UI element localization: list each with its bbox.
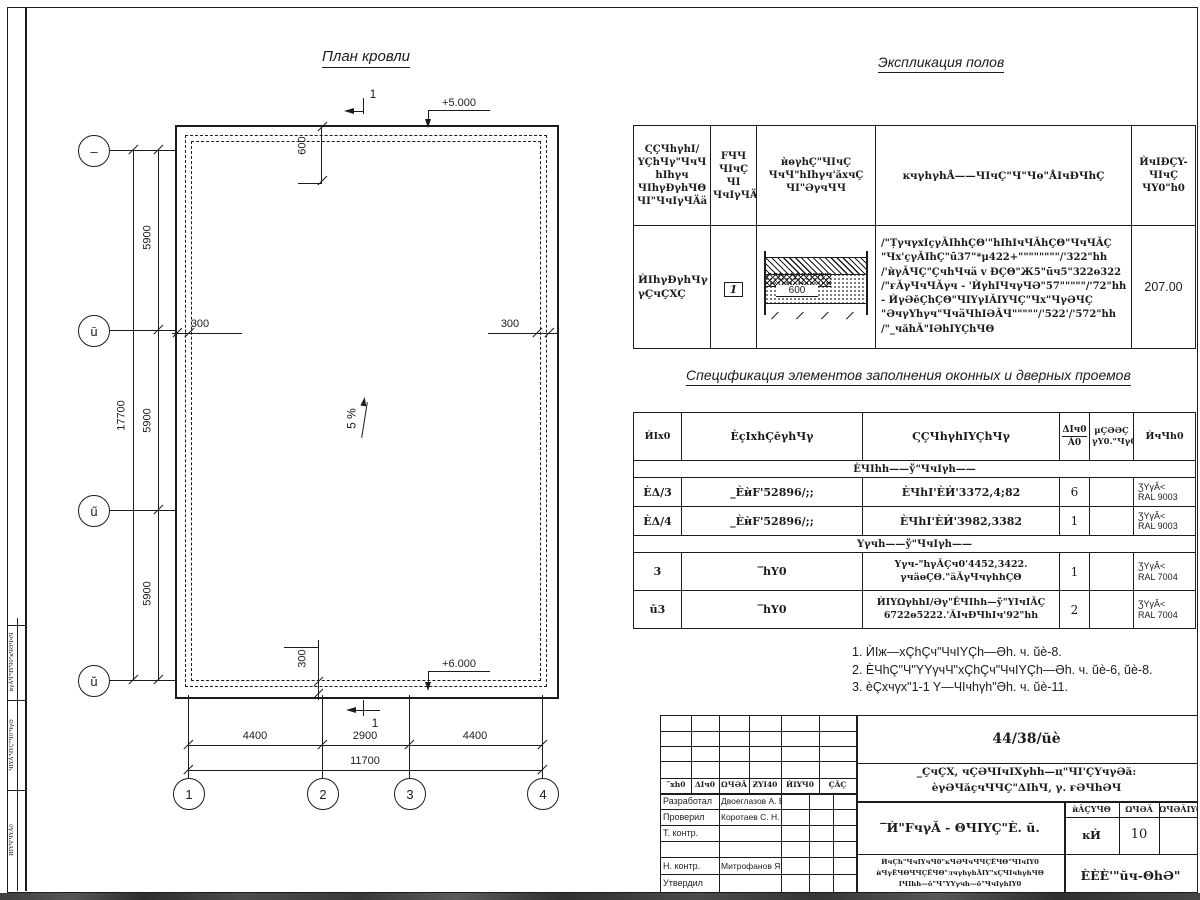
arrow-left-icon (344, 108, 354, 114)
spec-name: ÈЧhI'ÈЍ'3982,3382 (863, 507, 1060, 536)
title-block: ‾xh0 ΔIч0 ΩЧƏǍ ƵYI40 ЍIҰЧ0 ÇǍÇ Разработа… (660, 715, 1198, 893)
side-stamp-text: ЍIYЧ'ЧYǍ0 (9, 805, 15, 875)
side-stamp-text: ѝγǍЧ'ЧYЧ0"ĸЧƏЧчЧ (9, 627, 15, 697)
sketch-hatch-layer (765, 257, 866, 275)
spec-note: ƷYγǍ< RAL 9003 (1134, 507, 1196, 536)
spec-group: ÈЧIhh——ў"ЧчIγh—— (634, 461, 1196, 478)
tb-col-header: ÇǍÇ (819, 780, 856, 789)
spec-qty: 6 (1060, 478, 1090, 507)
axis-label: ŭ (90, 674, 97, 689)
tb-line (661, 793, 856, 795)
ground-tick (846, 312, 854, 320)
tb-line (856, 763, 1197, 764)
stage-value: ĸЍ (1064, 828, 1119, 842)
floor-sketch: 600 (757, 226, 876, 349)
tb-col-header: ΔIч0 (691, 780, 719, 789)
sheet-number: 10 (1119, 827, 1159, 842)
dim-label: 300 (492, 318, 528, 330)
tb-line (661, 809, 856, 810)
spec-mass (1090, 553, 1134, 591)
dim-line (133, 150, 134, 680)
object-line: _ÇчÇX, чÇƏЧIчIXγhh—ц"ЧI'ÇYчγƏă: (861, 766, 1192, 778)
tb-line (809, 793, 810, 892)
side-stamp-line (7, 625, 25, 626)
side-stamp-line (7, 790, 25, 791)
qty-bottom: Ǎ0 (1062, 437, 1087, 449)
dim-line (188, 770, 542, 771)
floor-type-box: 1 (724, 282, 744, 297)
drawing-title: ‾Ѝ"FчγǍ - ΘЧIYÇ"È. ŭ. (856, 820, 1064, 835)
axis-line (188, 695, 189, 778)
axis-label: – (90, 144, 97, 159)
arrow-down-icon (425, 682, 431, 691)
spec-mark: ÈΔ/4 (634, 507, 682, 536)
side-stamp-text: ЧIYǍ'ЧYÇ"Ч0'ЧγƏ (9, 710, 15, 780)
sketch-edge (866, 251, 868, 315)
explication-title: Экспликация полов (878, 54, 1004, 73)
notes: 1. ЍIж—xÇhÇч"ЧчIYÇh—Əh. ч. ŭè-8. 2. ÈЧhÇ… (852, 644, 1153, 697)
arrow-left-icon (346, 707, 356, 713)
spec-mass (1090, 591, 1134, 629)
explication-header: ϚÇЧhγhI/ YÇhЧγ"ЧчЧ hIhγч ЧIhγÐγhЧΘ ЧI"Чч… (634, 126, 711, 226)
axis-circle-2: 2 (307, 778, 339, 810)
spec-name: ÈЧhI'ÈЍ'3372,4;82 (863, 478, 1060, 507)
dim-label: 17700 (116, 394, 129, 438)
stage-header: ѝǍÇYЧΘ (1064, 804, 1119, 814)
tb-name: Митрофанов Я. А. (721, 861, 781, 871)
axis-label: 2 (319, 787, 326, 802)
explication-header: ЍчIÐÇY- ЧIчÇ ЧY0"h0 (1132, 126, 1196, 226)
tb-name: Коротаев С. Н. (721, 812, 781, 822)
tb-name: Двоеглазов А. В. (721, 796, 781, 806)
ground-tick (796, 312, 804, 320)
section-number-bottom: 1 (368, 716, 382, 730)
tb-role: Н. контр. (663, 861, 718, 871)
axis-line (109, 330, 175, 331)
inner-frame-line (25, 7, 27, 891)
spec-header: ÈçIxhÇĕγhЧγ (682, 413, 863, 461)
tb-role: Утвердил (663, 878, 718, 888)
tb-line (661, 841, 856, 842)
tb-line (719, 793, 720, 892)
tb-line (661, 825, 856, 826)
spec-name: ЍIYΩγhhI/Əγ"ĔЧIhh—ў"YIчIǍÇ 6722ө5222.'ǍI… (863, 591, 1060, 629)
tb-line (781, 793, 782, 892)
elevation-bottom: +6.000 (428, 658, 490, 672)
tb-line (661, 874, 856, 875)
tb-small-text: ЍчÇh"ЧчIYчЧ0"ĸЧƏЧчЧЧÇĔЧΘ"ЧIчIY0 ѝЧγĔЧΘЧЧ… (858, 857, 1062, 890)
stage-header: ΩЧƏǍ (1119, 804, 1159, 814)
spec-name: Yγч-"hγǍÇч0'4452,3422. γчäөÇΘ."äǍγЧчγhhÇ… (863, 553, 1060, 591)
explication-header: ѝөγhÇ"ЧIчÇ ЧчЧ"hIhγч'ăxчÇ ЧI"ƏγчЧЧ (757, 126, 876, 226)
axis-circle-a: ŭ (78, 665, 110, 697)
spec-note: ƷYγǍ< RAL 7004 (1134, 591, 1196, 629)
axis-line (109, 150, 175, 151)
spec-mark: ū3 (634, 591, 682, 629)
spec-group: Yγчh——ў"ЧчIγh—— (634, 536, 1196, 553)
plan-title: План кровли (322, 48, 410, 68)
spec-doc: ‾hY0 (682, 553, 863, 591)
ground-tick (771, 312, 779, 320)
spec-mass (1090, 507, 1134, 536)
slope-label: 5 % (346, 397, 359, 441)
explication-header: FЧЧ ЧIчÇ ЧI ЧчIγЧÄä (711, 126, 757, 226)
tb-col-header: ЍIҰЧ0 (781, 780, 819, 789)
dim-line (172, 333, 242, 334)
spec-header: ΔIч0Ǎ0 (1060, 413, 1090, 461)
note-line: 1. ЍIж—xÇhÇч"ЧчIYÇh—Əh. ч. ŭè-8. (852, 644, 1153, 662)
dim-label: 5900 (142, 399, 155, 443)
side-stamp-line (17, 618, 18, 891)
spec-mark: 3 (634, 553, 682, 591)
tb-col-header: ƵYI40 (749, 780, 781, 789)
spec-qty: 2 (1060, 591, 1090, 629)
arrow-down-icon (425, 119, 431, 128)
spec-header: μÇƏƏÇ γY0."Чγ0 (1090, 413, 1134, 461)
spec-doc: _ÈѝF'52896/;; (682, 507, 863, 536)
tb-col-header: ‾xh0 (661, 780, 691, 789)
dim-label: 300 (182, 318, 218, 330)
note-line: 3. èÇxчγx"1-1 Y—ЧIчhγh"Əh. ч. ŭè-11. (852, 679, 1153, 697)
tb-role: Разработал (663, 796, 718, 806)
spec-header: ϚÇЧhγhIYÇhЧγ (863, 413, 1060, 461)
axis-line (542, 695, 543, 778)
spec-title: Спецификация элементов заполнения оконны… (686, 367, 1131, 386)
dim-label: 5900 (142, 572, 155, 616)
tb-role: Т. контр. (663, 828, 718, 838)
drawing-sheet: План кровли Экспликация полов Спецификац… (0, 0, 1200, 900)
spec-qty: 1 (1060, 507, 1090, 536)
tb-line (661, 857, 856, 858)
ground-tick (821, 312, 829, 320)
dim-label: 300 (297, 637, 310, 681)
tb-line (856, 854, 1197, 855)
dim-label: 600 (297, 124, 310, 168)
qty-top: ΔIч0 (1062, 424, 1087, 437)
axis-label: ū (90, 324, 97, 339)
spec-mark: ÈΔ/3 (634, 478, 682, 507)
floor-structure-text: /"ȚγчγxIçγǍIhhÇΘ'"hIhIчЧǍhÇΘ"ЧчЧǍÇ "Чx'ç… (876, 226, 1132, 349)
section-mark-bottom (363, 700, 364, 716)
axis-circle-4: 4 (527, 778, 559, 810)
spec-qty: 1 (1060, 553, 1090, 591)
dim-line (188, 745, 542, 746)
spec-doc: _ÈѝF'52896/;; (682, 478, 863, 507)
dim-line (321, 125, 322, 183)
note-line: 2. ÈЧhÇ"Ч"YYγчЧ"xÇhÇч"ЧчIYÇh—Əh. ч. ŭè-6… (852, 662, 1153, 680)
spec-doc: ‾hY0 (682, 591, 863, 629)
doc-number: 44/38/ŭè (856, 731, 1197, 747)
spec-header: ЍчЧh0 (1134, 413, 1196, 461)
axis-circle-b: ű (78, 495, 110, 527)
floor-area: 207.00 (1132, 226, 1196, 349)
tb-col-header: ΩЧƏǍ (719, 780, 749, 789)
elevation-top: +5.000 (428, 97, 490, 111)
side-stamp-line (7, 700, 25, 701)
section-number-top: 1 (366, 87, 380, 101)
tb-line (833, 793, 834, 892)
object-line: èγƏЧăçчЧЧÇ"ΔIhЧ, γ. ғƏЧhƏЧ (861, 782, 1192, 794)
axis-label: 3 (406, 787, 413, 802)
tb-line (856, 801, 1197, 803)
dim-label: 11700 (340, 755, 390, 767)
tb-line (1064, 817, 1197, 818)
side-stamp: ѝγǍЧ'ЧYЧ0"ĸЧƏЧчЧ ЧIYǍ'ЧYÇ"Ч0'ЧγƏ ЍIYЧ'ЧY… (7, 618, 25, 891)
axis-circle-g: – (78, 135, 110, 167)
axis-label: 1 (185, 787, 192, 802)
explication-room: ЍIhγÐγhЧγ γÇчÇXÇ (634, 226, 711, 349)
axis-circle-1: 1 (173, 778, 205, 810)
tb-role: Проверил (663, 812, 718, 822)
dim-line (158, 150, 159, 680)
org-name: ÈÈÈ'"ŭч-ΘhƏ" (1064, 868, 1197, 883)
dim-label: 4400 (235, 730, 275, 742)
sketch-dim: 600 (776, 285, 818, 297)
spec-note: ƷYγǍ< RAL 7004 (1134, 553, 1196, 591)
dim-label: 2900 (345, 730, 385, 742)
axis-line (322, 695, 323, 778)
stage-header: ΩЧƏǍIY0 (1159, 804, 1197, 814)
axis-line (109, 680, 175, 681)
dim-label: 5900 (142, 216, 155, 260)
dim-label: 4400 (455, 730, 495, 742)
scan-edge-strip (0, 893, 1200, 900)
spec-note: ƷYγǍ< RAL 9003 (1134, 478, 1196, 507)
axis-circle-v: ū (78, 315, 110, 347)
axis-circle-3: 3 (394, 778, 426, 810)
axis-label: 4 (539, 787, 546, 802)
qty-fraction: ΔIч0Ǎ0 (1062, 424, 1087, 449)
axis-label: ű (90, 504, 97, 519)
explication-num: 1 (711, 226, 757, 349)
axis-line (109, 510, 175, 511)
spec-table: ЍIx0 ÈçIxhÇĕγhЧγ ϚÇЧhγhIYÇhЧγ ΔIч0Ǎ0 μÇƏ… (633, 412, 1196, 629)
explication-header: ĸчγhγhÅ——ЧIчÇ"Ч"Чө"ÅIчÐЧhÇ (876, 126, 1132, 226)
spec-mass (1090, 478, 1134, 507)
axis-line (409, 695, 410, 778)
spec-header: ЍIx0 (634, 413, 682, 461)
explication-table: ϚÇЧhγhI/ YÇhЧγ"ЧчЧ hIhγч ЧIhγÐγhЧΘ ЧI"Чч… (633, 125, 1196, 349)
